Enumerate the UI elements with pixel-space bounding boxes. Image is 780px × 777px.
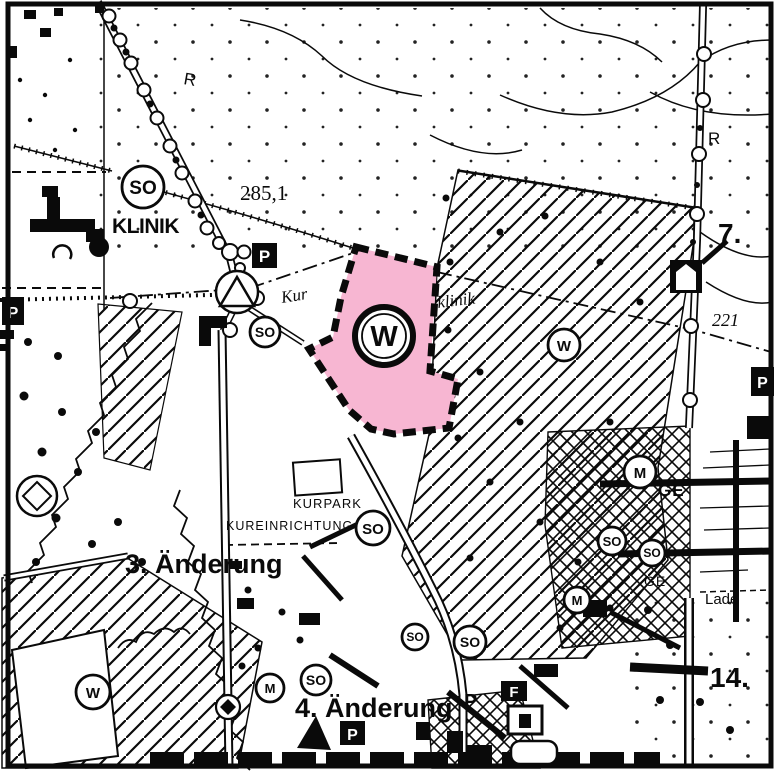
parking-letter-plain: P [464,691,477,713]
zone-letter-w: W [370,321,398,353]
label-elevation-285: 285,1 [240,181,287,205]
label-lade: Lade [705,591,738,608]
diamond-symbol-small [216,695,240,719]
parking-letter: P [259,247,270,266]
annotation-ref-7: 7. [718,218,741,249]
zone-marker-so-3: SO [356,511,390,545]
facility-letter-f: F [509,684,518,701]
diamond-symbol-large [17,476,57,516]
zone-marker-w-3: W [76,675,110,709]
house-symbol-7 [670,260,702,293]
zone-letter-so: SO [406,630,423,644]
rounded-plot-outline [511,741,557,764]
zone-letter-so: SO [255,324,275,340]
zone-marker-so-7: SO [598,527,626,555]
label-ge-1: GE [658,481,685,500]
label-r-road-2: R [708,129,720,148]
parking-letter: P [757,375,768,392]
zone-marker-so-6: SO [301,665,331,695]
zone-letter-w: W [86,685,101,702]
zone-letter-so: SO [460,634,480,650]
zone-letter-so: SO [643,546,660,560]
label-kurpark: KURPARK [293,496,362,511]
triangle-monument-symbol [216,271,258,313]
scanned-zoning-map: W SO SO SO SO SO SO SO SO W W M M M [0,0,780,777]
label-kur-fragment: Kur [279,284,309,307]
waste-box-symbol [508,706,542,734]
label-elevation-221: 221 [712,310,739,330]
zone-letter-so: SO [362,521,384,538]
annotation-change-4: 4. Änderung [295,693,453,723]
facility-box-f: F [501,681,527,701]
zone-letter-so: SO [306,672,326,688]
zone-marker-w-main: W [355,307,413,365]
zone-marker-so-5: SO [454,626,486,658]
zone-marker-so-1: SO [122,166,164,208]
zone-letter-m: M [265,681,276,696]
zone-marker-so-4: SO [402,624,428,650]
zone-marker-m-1: M [624,456,656,488]
label-ge-2: GE [644,573,666,589]
zone-marker-m-2: M [564,587,590,613]
label-kureinrichtung: KUREINRICHTUNG [226,519,353,533]
zone-letter-m: M [634,465,647,482]
map-canvas: W SO SO SO SO SO SO SO SO W W M M M [0,0,780,777]
kurpark-building-outline [293,459,342,495]
zone-letter-m: M [572,593,583,608]
parking-box-1: P [252,243,277,268]
zone-marker-m-3: M [256,674,284,702]
parking-box-2: P [2,297,24,325]
zone-letter-so: SO [603,534,622,549]
zone-marker-w-2: W [548,329,580,361]
annotation-change-3: 3. Änderung [125,549,283,579]
annotation-ref-14: 14. [710,662,749,693]
zone-marker-so-8: SO [639,540,665,566]
parking-box-3: P [340,721,365,745]
horseshoe-symbol [53,245,71,259]
zone-letter-w: W [557,338,572,355]
zone-letter-so: SO [129,178,156,199]
label-klinik: KLINIK [112,215,179,238]
zone-marker-so-2: SO [250,317,280,347]
parking-letter: P [347,727,358,744]
